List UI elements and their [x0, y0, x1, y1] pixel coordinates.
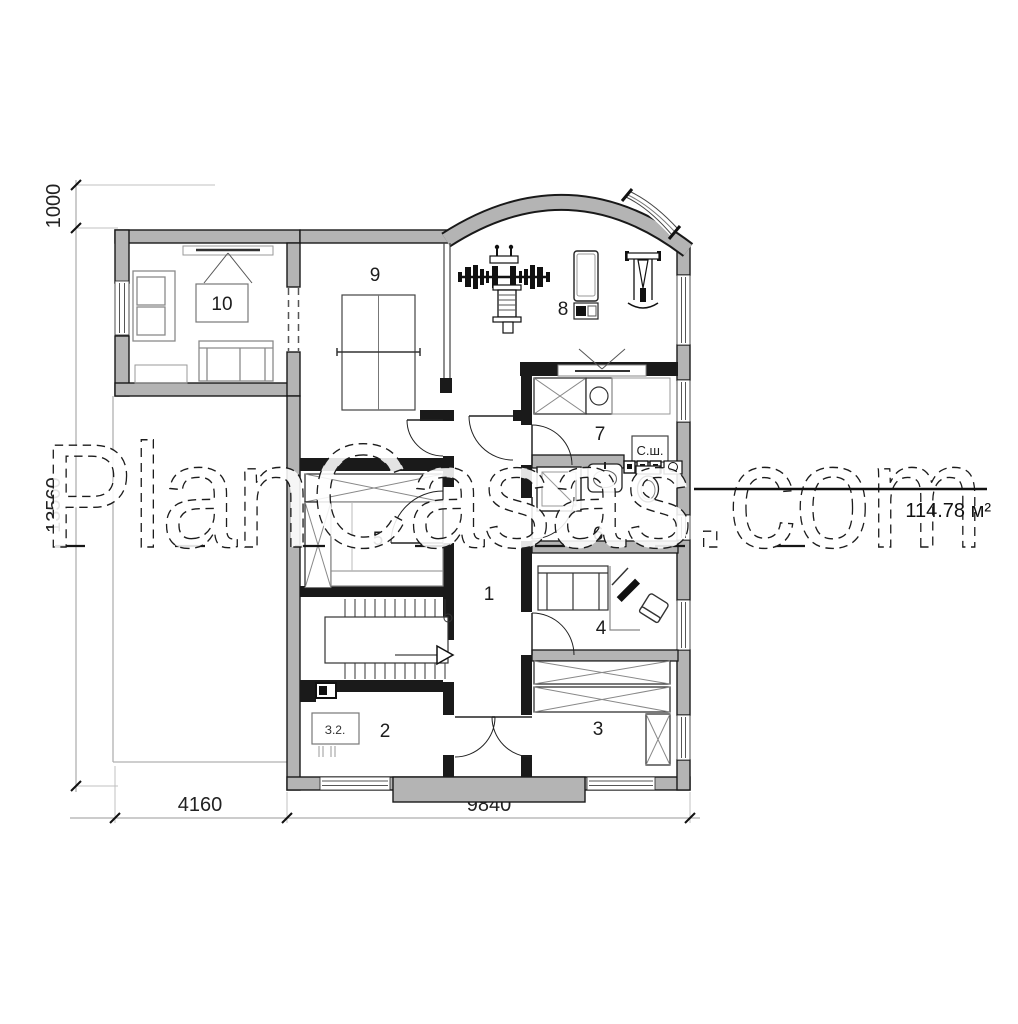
window-bottom-room3 — [587, 777, 655, 790]
room-number-3: 3 — [593, 719, 604, 740]
watermark: PlanCasas.com — [42, 414, 987, 579]
room3-wardrobes — [534, 661, 670, 765]
dim-top-offset: 1000 — [43, 184, 65, 229]
treadmill — [574, 251, 598, 319]
counter — [612, 378, 670, 414]
room-number-1: 1 — [484, 584, 495, 605]
window-room10-left — [115, 281, 129, 335]
room-number-8: 8 — [558, 299, 569, 320]
sofa — [133, 271, 175, 341]
window-right-room3 — [677, 715, 690, 760]
bench-press — [458, 245, 550, 333]
window-bottom-room2 — [320, 777, 390, 790]
room-number-4: 4 — [596, 618, 607, 639]
watermark-text: PlanCasas.com — [42, 414, 982, 579]
dashed-opening — [286, 288, 301, 351]
window-right-gym — [677, 275, 690, 345]
electrical-panel — [316, 683, 336, 698]
door-room4 — [532, 613, 574, 655]
floor-plan-page: 1000 13560 4160 9840 — [0, 0, 1018, 1024]
floor-plan-drawing: 1000 13560 4160 9840 — [0, 0, 1018, 1024]
room-number-2: 2 — [380, 721, 391, 742]
ping-pong-table — [337, 295, 420, 410]
window-right-room4 — [677, 600, 690, 650]
dim-left-width: 4160 — [178, 794, 223, 816]
room-number-9: 9 — [370, 265, 381, 286]
exercise-machine — [625, 251, 661, 308]
laptop — [617, 579, 640, 602]
stair-stringer — [325, 617, 448, 663]
room10-furniture — [133, 246, 273, 383]
office-chair — [639, 593, 669, 623]
area-label: 114.78 м² — [905, 500, 991, 522]
room7-furniture — [534, 349, 670, 414]
door-room2 — [455, 717, 495, 757]
sofa-2 — [199, 341, 273, 381]
wardrobe — [534, 378, 586, 414]
room2-items: З.2. — [312, 683, 359, 757]
tv-unit — [183, 246, 273, 283]
stairs — [325, 599, 453, 679]
door-room3 — [492, 717, 532, 757]
glass-partition — [444, 243, 450, 378]
room-number-10: 10 — [211, 294, 232, 315]
arched-bay-wall — [446, 189, 688, 250]
washing-machine — [586, 378, 612, 414]
panel-label: З.2. — [325, 723, 346, 737]
cabinet — [135, 365, 187, 383]
panel-box: З.2. — [312, 713, 359, 757]
